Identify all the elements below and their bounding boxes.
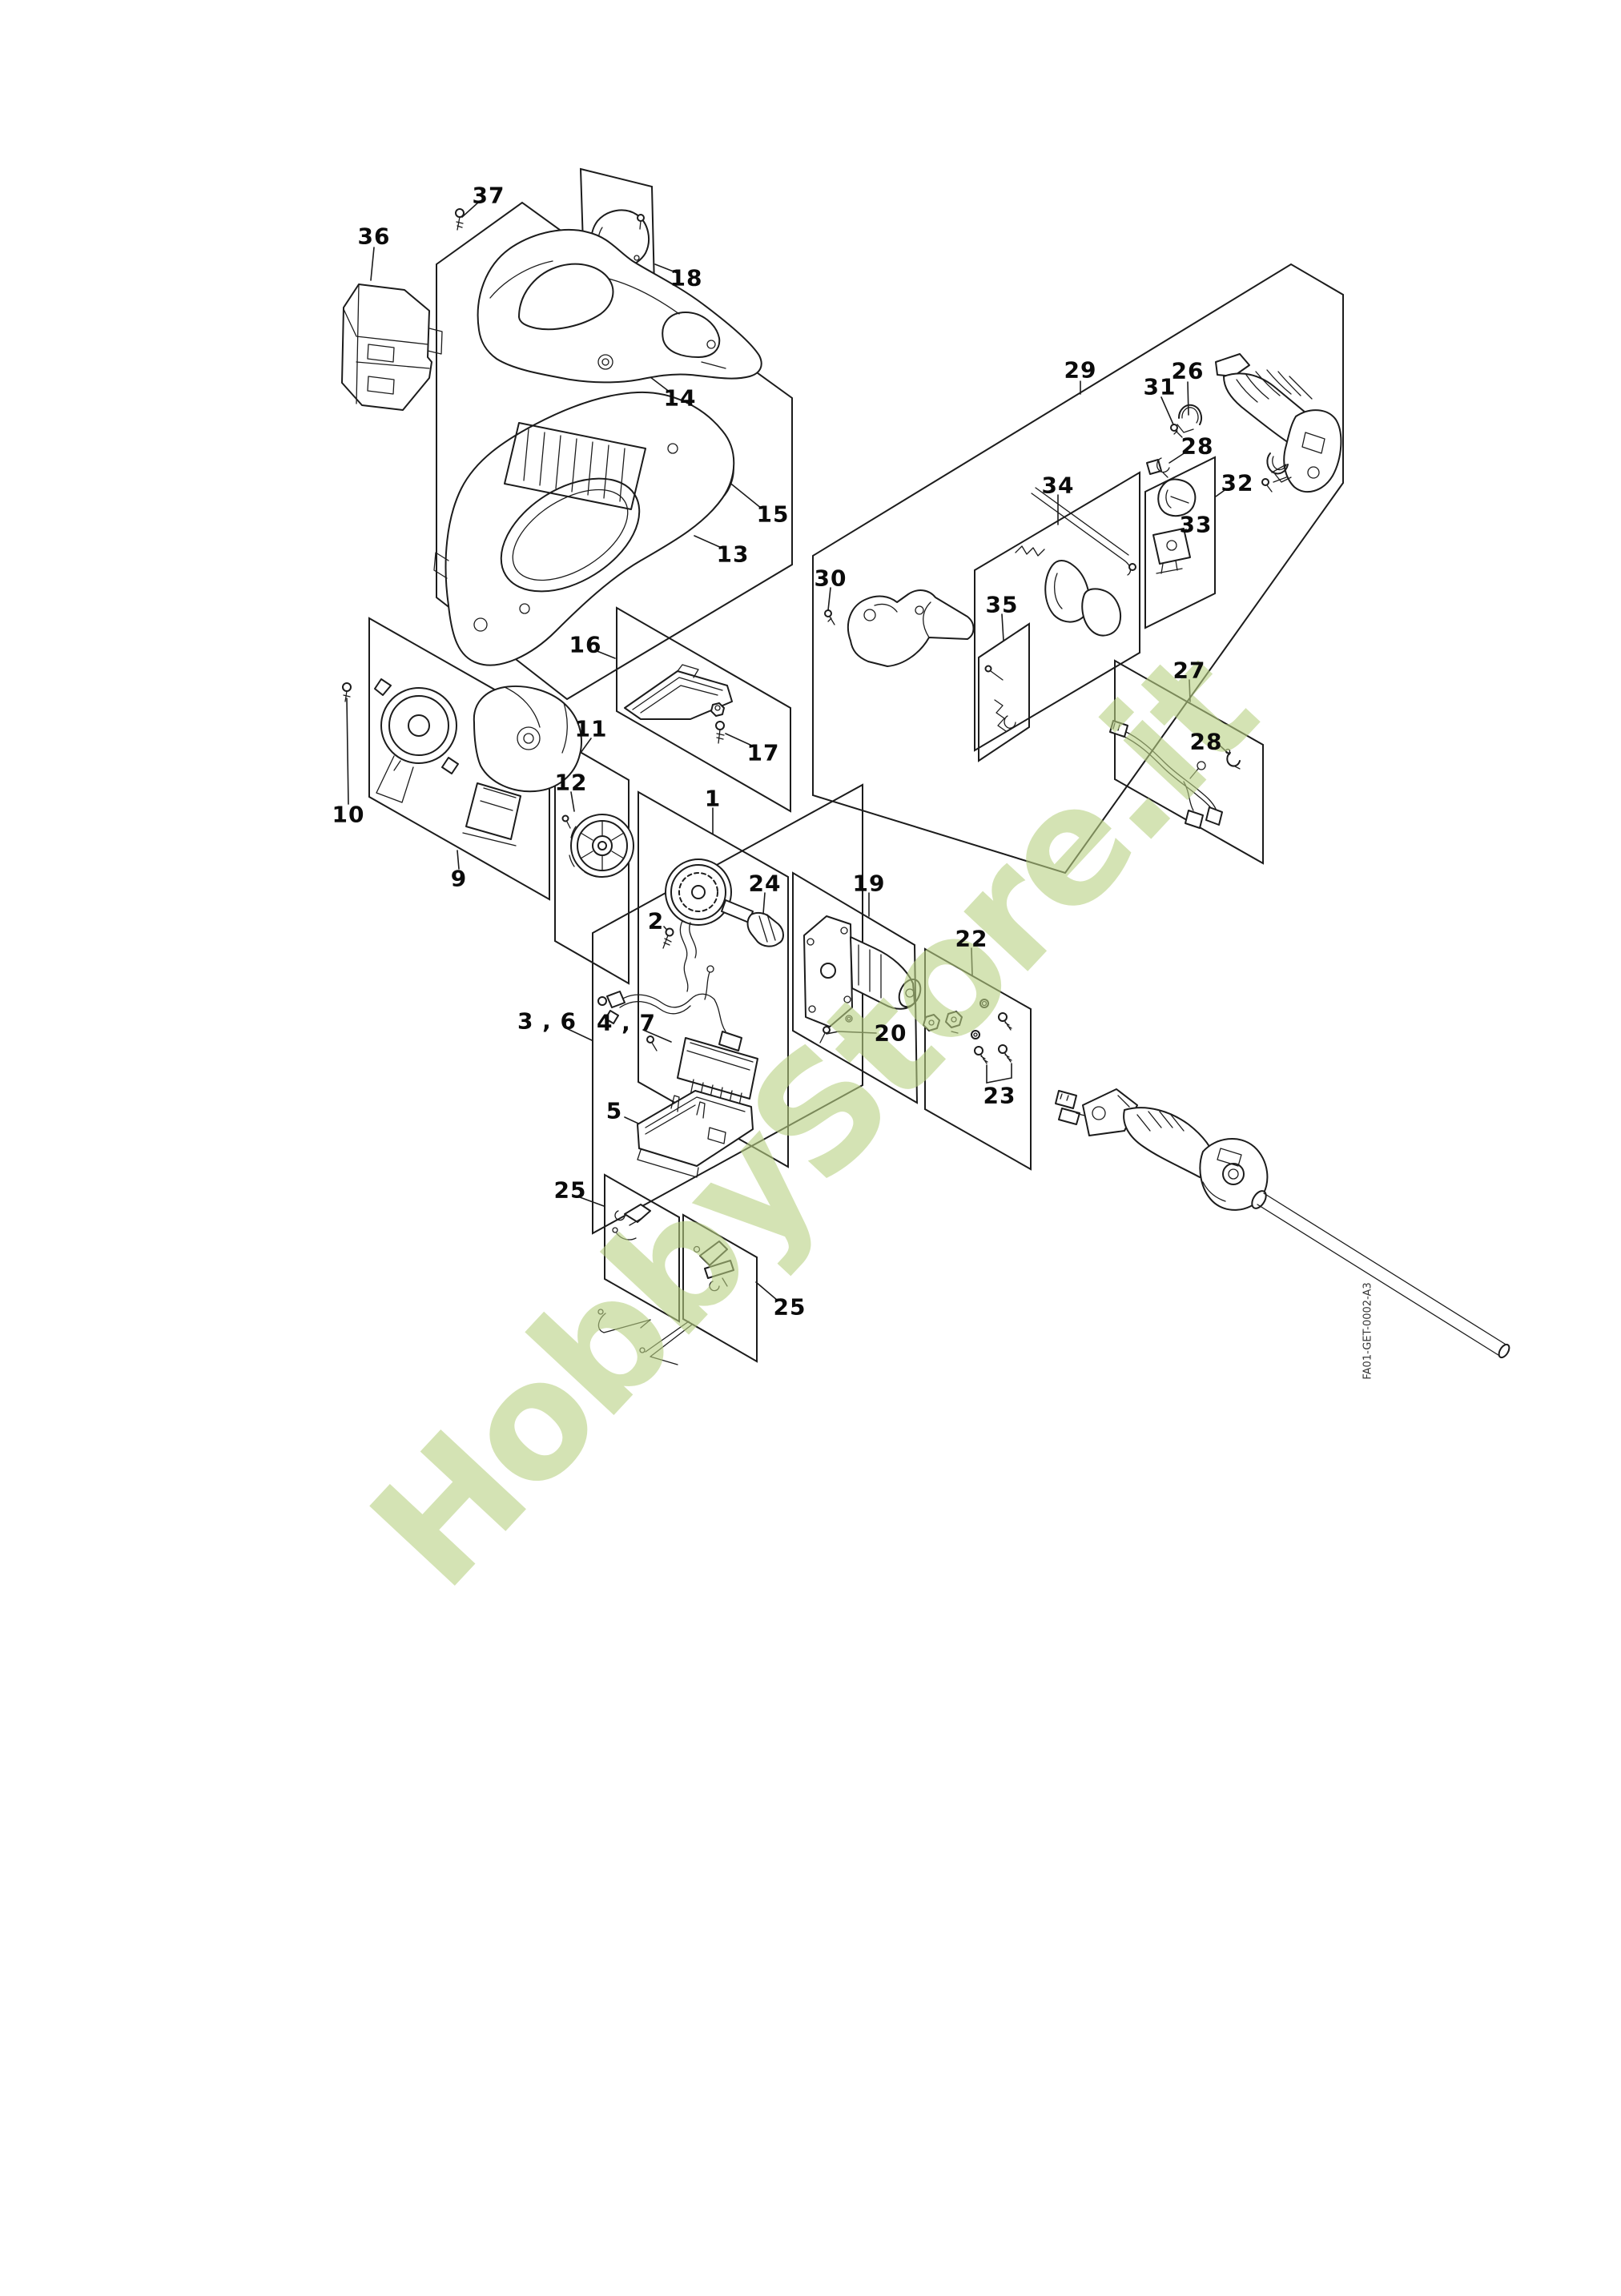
part-label-27: 27 [1173,657,1206,684]
part-14-housing-top [478,230,762,382]
part-label-4_7: 4 , 7 [597,1010,656,1036]
panel-27 [1115,661,1263,863]
part-label-12: 12 [555,770,588,796]
part-5-tray [638,1091,753,1177]
part-label-25b: 25 [774,1294,806,1321]
part-label-5: 5 [606,1098,622,1124]
part-label-16: 16 [569,632,602,658]
panel-25-right [683,1215,757,1361]
part-label-24: 24 [749,871,782,897]
part-label-30: 30 [815,565,847,592]
part-label-31: 31 [1144,374,1177,400]
part-label-2: 2 [648,908,664,935]
part-2-screw [663,929,674,949]
part-label-9: 9 [451,866,467,892]
part-26-clamp [1177,405,1201,432]
part-30-handle-housing [825,590,974,666]
part-24-coupler [748,913,784,947]
part-label-26: 26 [1172,358,1205,384]
part-label-36: 36 [358,223,391,250]
part-label-22: 22 [955,926,988,952]
part-label-35: 35 [986,592,1019,618]
part-label-13: 13 [717,541,750,568]
part-label-17: 17 [747,740,780,766]
part-36-cover [342,284,442,410]
part-label-23: 23 [983,1083,1016,1109]
part-label-34: 34 [1042,472,1075,499]
part-label-11: 11 [575,716,608,742]
part-12-fan-wheel [563,814,634,877]
part-37-screw [456,209,464,230]
part-label-28b: 28 [1190,729,1223,755]
part-label-29: 29 [1064,357,1097,384]
parts-diagram-page: HobbyStore.it FA01-GET-0002-A3 373618141… [0,0,1621,2296]
exploded-parts-diagram [0,0,1621,2296]
part-label-3_6: 3 , 6 [517,1008,577,1035]
part-label-10: 10 [332,802,365,828]
part-35-spring-pin-group [986,666,1016,732]
part-13-housing-bottom [434,392,734,665]
panel-22 [925,949,1031,1169]
part-complete-powerhead-shaft [1056,1089,1511,1359]
part-32-switch-housing [1158,479,1195,516]
part-label-37: 37 [473,183,505,209]
part-label-15: 15 [757,501,790,528]
part-label-25a: 25 [554,1177,587,1204]
drawing-code: FA01-GET-0002-A3 [1362,1282,1374,1379]
part-label-1: 1 [705,786,721,812]
panel-25-left [605,1175,679,1321]
part-28-clip-left [1147,458,1169,477]
part-label-28a: 28 [1181,433,1214,460]
panel-35 [979,624,1029,761]
part-22-23-fastener-set [923,999,1012,1064]
part-4-7-wiring-control [598,966,758,1109]
part-label-32: 32 [1221,470,1254,497]
part-17-screw-nut [711,703,724,743]
part-label-33: 33 [1180,512,1213,538]
part-label-18: 18 [670,265,703,292]
part-9-fan-housing [375,679,581,846]
part-label-20: 20 [875,1020,907,1047]
part-25-switch-levers [598,1204,734,1365]
part-label-19: 19 [853,871,886,897]
part-label-14: 14 [664,385,697,412]
